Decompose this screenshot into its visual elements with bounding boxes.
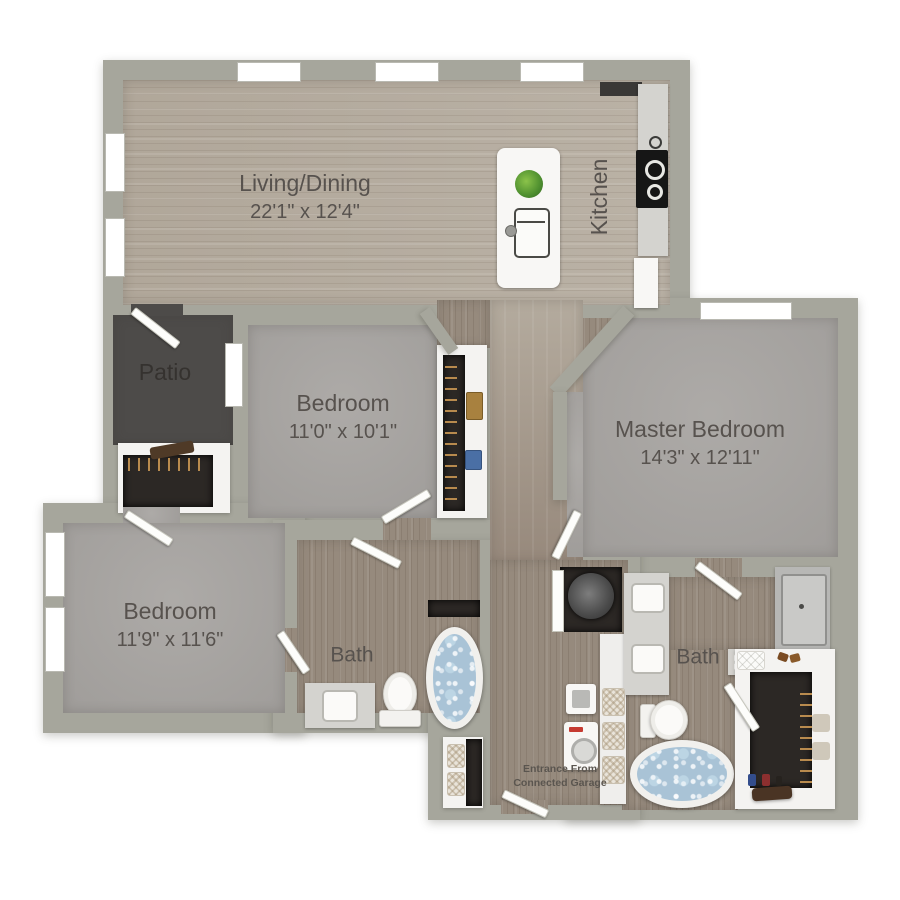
refrigerator	[634, 258, 658, 308]
wicker-basket	[447, 772, 465, 796]
bath-master-label: Bath	[676, 643, 719, 670]
wicker-basket	[602, 722, 625, 750]
water-heater-closet-door	[552, 570, 564, 632]
shoes	[762, 774, 770, 786]
toilet-tank	[379, 710, 421, 727]
shower-drain	[799, 604, 804, 609]
water-heater	[568, 573, 614, 619]
pillow	[737, 651, 765, 670]
shoes	[776, 776, 782, 786]
wicker-basket	[602, 688, 625, 716]
window	[105, 133, 125, 192]
wicker-basket	[447, 744, 465, 768]
room-dimensions: 11'9" x 11'6"	[117, 627, 224, 653]
kitchen-sink-faucet	[649, 136, 662, 149]
window	[520, 62, 584, 82]
bench	[752, 786, 793, 802]
entrance-label: Entrance From Connected Garage	[513, 762, 606, 790]
toilet	[650, 700, 688, 740]
vanity-sink-2	[631, 644, 665, 674]
bedroom-middle-label: Bedroom 11'0" x 10'1"	[289, 389, 397, 445]
bedroom-left-label: Bedroom 11'9" x 11'6"	[117, 597, 224, 653]
living-dining-label: Living/Dining 22'1" x 12'4"	[239, 169, 371, 225]
shoes	[748, 774, 756, 786]
room-dimensions: 14'3" x 12'11"	[615, 445, 785, 471]
patio-label: Patio	[139, 358, 191, 388]
window	[375, 62, 439, 82]
washer-buttons	[569, 727, 583, 732]
dryer-lid	[572, 690, 590, 708]
room-name: Living/Dining	[239, 169, 371, 199]
room-name: Bath	[330, 641, 373, 668]
window	[45, 532, 65, 597]
soaking-tub	[630, 740, 734, 808]
floor-plan: Living/Dining 22'1" x 12'4" Kitchen Pati…	[0, 0, 900, 900]
room-dimensions: 22'1" x 12'4"	[239, 199, 371, 225]
island-faucet	[505, 225, 517, 237]
room-name: Bedroom	[289, 389, 397, 419]
washer-drum	[571, 738, 597, 764]
island-sink-divider	[517, 221, 545, 223]
room-name: Bedroom	[117, 597, 224, 627]
room-dimensions: 11'0" x 10'1"	[289, 419, 397, 445]
closet-seat	[812, 714, 830, 732]
stove-burner	[647, 184, 663, 200]
bath-main-sink	[322, 690, 358, 722]
bath-main-label: Bath	[330, 641, 373, 668]
kitchen-pantry	[600, 82, 642, 96]
soaking-tub	[426, 627, 483, 729]
vanity-sink-1	[631, 583, 665, 613]
window-patio	[225, 343, 243, 407]
room-name: Bath	[676, 643, 719, 670]
window	[105, 218, 125, 277]
closet-rod-hangers	[445, 360, 457, 500]
closet-item-basket	[466, 392, 483, 420]
window-master	[700, 302, 792, 320]
closet-rod-hangers	[128, 458, 206, 471]
room-name: Master Bedroom	[615, 415, 785, 445]
room-name: Patio	[139, 358, 191, 388]
plant	[515, 170, 543, 198]
entry-closet-interior	[466, 739, 482, 806]
entrance-line1: Entrance From	[513, 762, 606, 776]
window	[45, 607, 65, 672]
master-bedroom-label: Master Bedroom 14'3" x 12'11"	[615, 415, 785, 471]
window	[237, 62, 301, 82]
bath-main-niche	[428, 600, 480, 617]
wall-master-left	[553, 392, 567, 500]
closet-rod-hangers	[800, 688, 812, 783]
closet-seat	[812, 742, 830, 760]
stove-burner	[645, 160, 665, 180]
room-name: Kitchen	[585, 159, 615, 236]
shower-floor	[781, 574, 827, 646]
kitchen-label: Kitchen	[585, 159, 615, 236]
entrance-line2: Connected Garage	[513, 776, 606, 790]
island-sink	[514, 208, 550, 258]
closet-item-box	[465, 450, 482, 470]
